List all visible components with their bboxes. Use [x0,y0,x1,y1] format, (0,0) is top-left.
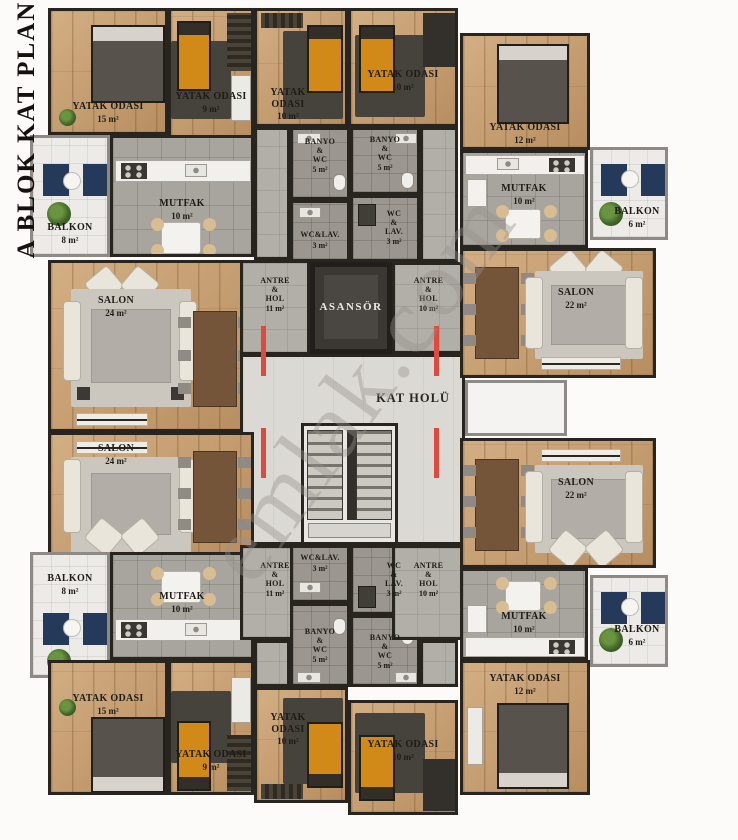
room-kitchen-top-left: MUTFAK 10 m² [110,135,254,257]
balcony-table [621,598,639,616]
room-living-24-top-left: SALON 24 m² [48,260,254,432]
kitchen-chairs [151,567,164,580]
toilet [401,172,414,189]
wardrobe [261,13,303,28]
room-living-22-top-right: SALON 22 m² [460,248,656,378]
coffee-table [171,387,184,400]
room-bedroom-12-top-right: YATAK ODASI 12 m² [460,33,590,150]
dining-chairs [463,273,476,284]
wardrobe [227,735,251,791]
room-label: ANTRE & HOL 11 m² [243,277,307,313]
room-bath-5-bottom-a: BANYO & WC 5 m² [290,603,350,687]
room-label: WC&LAV. 3 m² [293,231,347,250]
stove [549,158,575,172]
bathroom-sink [297,672,321,683]
dining-table [475,459,519,551]
stair-divider [347,430,356,520]
room-kitchen-bottom-left: MUTFAK 10 m² [110,552,254,660]
wardrobe [423,759,455,811]
kitchen-sink [185,164,207,177]
dresser [231,75,251,121]
corridor-bottom-right [420,640,458,687]
bathroom-sink [395,672,417,683]
kitchen-table [161,222,201,254]
kitchen-table [505,209,541,239]
plant [59,699,76,716]
double-bed [91,717,165,793]
room-label: ANTRE & HOL 10 m² [395,277,462,313]
wardrobe [467,707,483,765]
room-kitchen-bottom-right: MUTFAK 10 m² [460,568,588,660]
double-bed [497,44,569,124]
dining-chairs [178,457,191,468]
plant [599,202,623,226]
double-bed [91,25,165,103]
toilet [333,618,346,635]
single-bed [307,722,343,788]
stair-landing [308,523,391,538]
room-bedroom-10-bottom-a: YATAK ODASI 10 m² [254,687,348,803]
elevator-label: ASANSÖR [315,301,387,313]
sofa [525,471,543,543]
floor-plan: A BLOK KAT PLANI YATAK ODASI 15 m² YATAK… [0,0,738,840]
bathroom-sink [395,133,417,144]
plant [599,628,623,652]
entry-door-marker [434,428,439,478]
room-bedroom-10-bottom-b: YATAK ODASI 10 m² [348,700,458,815]
room-living-22-bottom-right: SALON 22 m² [460,438,656,568]
kitchen-chairs [151,218,164,231]
stair-flight [356,430,392,520]
room-bedroom-9-bottom-left: YATAK ODASI 9 m² [168,660,254,795]
stair-flight [307,430,343,520]
wardrobe [423,13,455,67]
shower [358,204,376,226]
room-label: ANTRE & HOL 10 m² [395,562,462,598]
sofa [525,277,543,349]
room-label: BALKON 8 m² [33,573,107,596]
room-bath-5-top-a: BANYO & WC 5 m² [290,127,350,200]
room-hall-10-top-right: ANTRE & HOL 10 m² [392,262,465,354]
tv-console [541,357,621,370]
carpet [91,309,171,383]
single-bed [177,721,211,791]
elevator: ASANSÖR [310,262,392,354]
stove [121,622,147,638]
tv-console [76,413,148,426]
bathroom-sink [299,582,321,593]
room-wc-3-bottom-a: WC&LAV. 3 m² [290,545,350,603]
dining-table [193,451,237,543]
staircase [301,423,398,545]
room-wc-3-top-b: WC & LAV. 3 m² [350,195,420,262]
single-bed [307,25,343,93]
floor-hall: KAT HOLÜ [240,354,465,545]
balcony-table [63,172,81,190]
toilet [333,174,346,191]
room-wc-3-top-a: WC&LAV. 3 m² [290,200,350,262]
page-title: A BLOK KAT PLANI [4,6,50,242]
room-bedroom-15-bottom-left: YATAK ODASI 15 m² [48,660,168,795]
room-bedroom-10-top-b: YATAK ODASI 10 m² [348,8,458,127]
room-living-24-bottom-left: SALON 24 m² [48,432,254,558]
wardrobe [227,13,251,71]
kitchen-table [161,571,201,603]
room-bedroom-10-top-a: YATAK ODASI 10 m² [254,8,348,127]
room-bedroom-12-bottom-right: YATAK ODASI 12 m² [460,660,590,795]
balcony-table [621,170,639,188]
room-label: WC&LAV. 3 m² [293,554,347,573]
carpet [551,285,627,345]
fridge [467,605,487,633]
carpet [551,479,627,539]
room-balcony-6-top-right: BALKON 6 m² [590,147,668,240]
dining-table [193,311,237,407]
stove [121,163,147,179]
light-well [465,380,567,436]
plant [59,109,76,126]
room-bedroom-15-top-left: YATAK ODASI 15 m² [48,8,168,135]
single-bed [359,25,395,93]
floor-hall-label: KAT HOLÜ [353,391,465,406]
coffee-table [77,387,90,400]
single-bed [177,21,211,91]
dining-table [475,267,519,359]
room-label: MUTFAK 10 m² [113,198,251,221]
entry-door-marker [261,428,266,478]
room-label: YATAK ODASI 12 m² [463,122,587,145]
room-kitchen-top-right: MUTFAK 10 m² [460,150,588,248]
sofa [625,471,643,543]
kitchen-chairs [496,577,509,590]
plant [47,202,71,226]
dresser [231,677,251,723]
room-balcony-6-bottom-right: BALKON 6 m² [590,575,668,667]
double-bed [497,703,569,789]
corridor-top-right [420,127,458,262]
kitchen-chairs [496,205,509,218]
sofa [625,277,643,349]
corridor-top-left [254,127,290,260]
room-label: WC & LAV. 3 m² [371,210,417,246]
room-bath-5-top-b: BANYO & WC 5 m² [350,127,420,195]
corridor-bottom-left [254,640,290,687]
tv-console [541,449,621,462]
fridge [467,179,487,207]
kitchen-sink [497,158,519,170]
page-title-text: A BLOK KAT PLANI [13,0,41,259]
shower [358,586,376,608]
single-bed [359,735,395,801]
sofa [63,301,81,381]
bathroom-sink [297,133,321,144]
tv-console [76,441,148,454]
kitchen-sink [185,623,207,636]
kitchen-table [505,581,541,611]
room-hall-11-top-left: ANTRE & HOL 11 m² [240,260,310,355]
entry-door-marker [434,326,439,376]
dining-chairs [463,465,476,476]
room-label: YATAK ODASI 12 m² [463,673,587,696]
balcony-table [63,619,81,637]
bathroom-sink [299,207,321,218]
dining-chairs [178,317,191,328]
room-hall-10-bottom-right: ANTRE & HOL 10 m² [392,545,465,640]
sofa [63,459,81,533]
wardrobe [261,784,303,799]
room-bedroom-9-top-left: YATAK ODASI 9 m² [168,8,254,140]
stove [549,640,575,654]
entry-door-marker [261,326,266,376]
